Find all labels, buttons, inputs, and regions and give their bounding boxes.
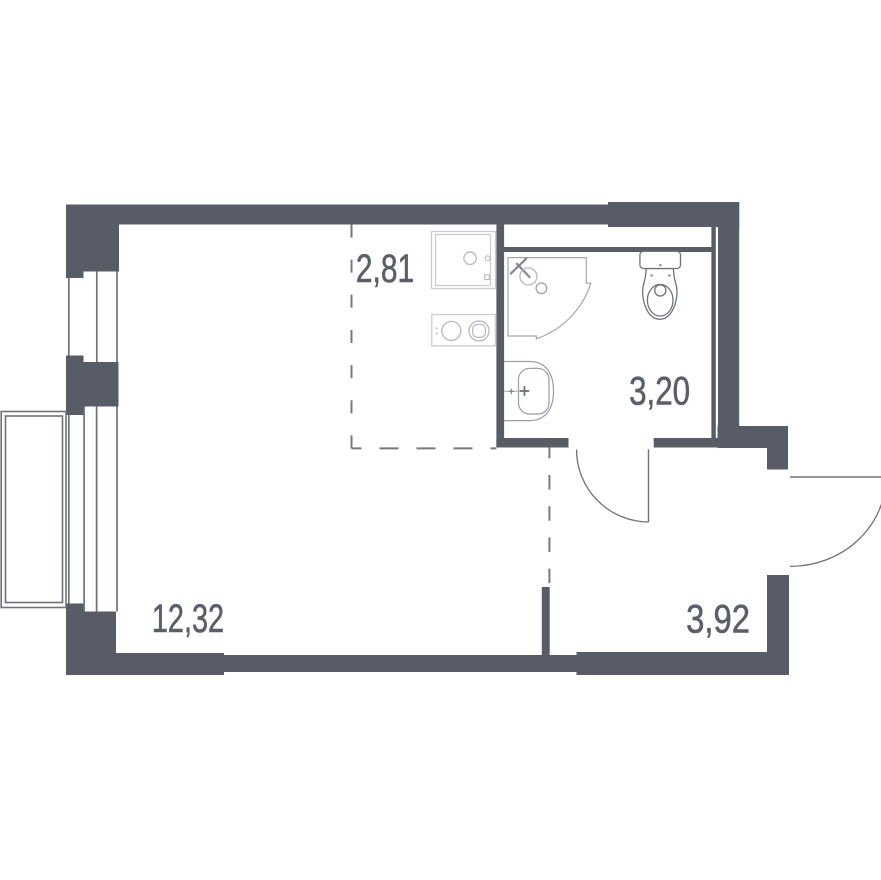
svg-text:3,20: 3,20 xyxy=(629,370,690,414)
svg-text:12,32: 12,32 xyxy=(152,597,224,641)
svg-text:2,81: 2,81 xyxy=(356,247,414,291)
svg-text:3,92: 3,92 xyxy=(686,598,750,642)
